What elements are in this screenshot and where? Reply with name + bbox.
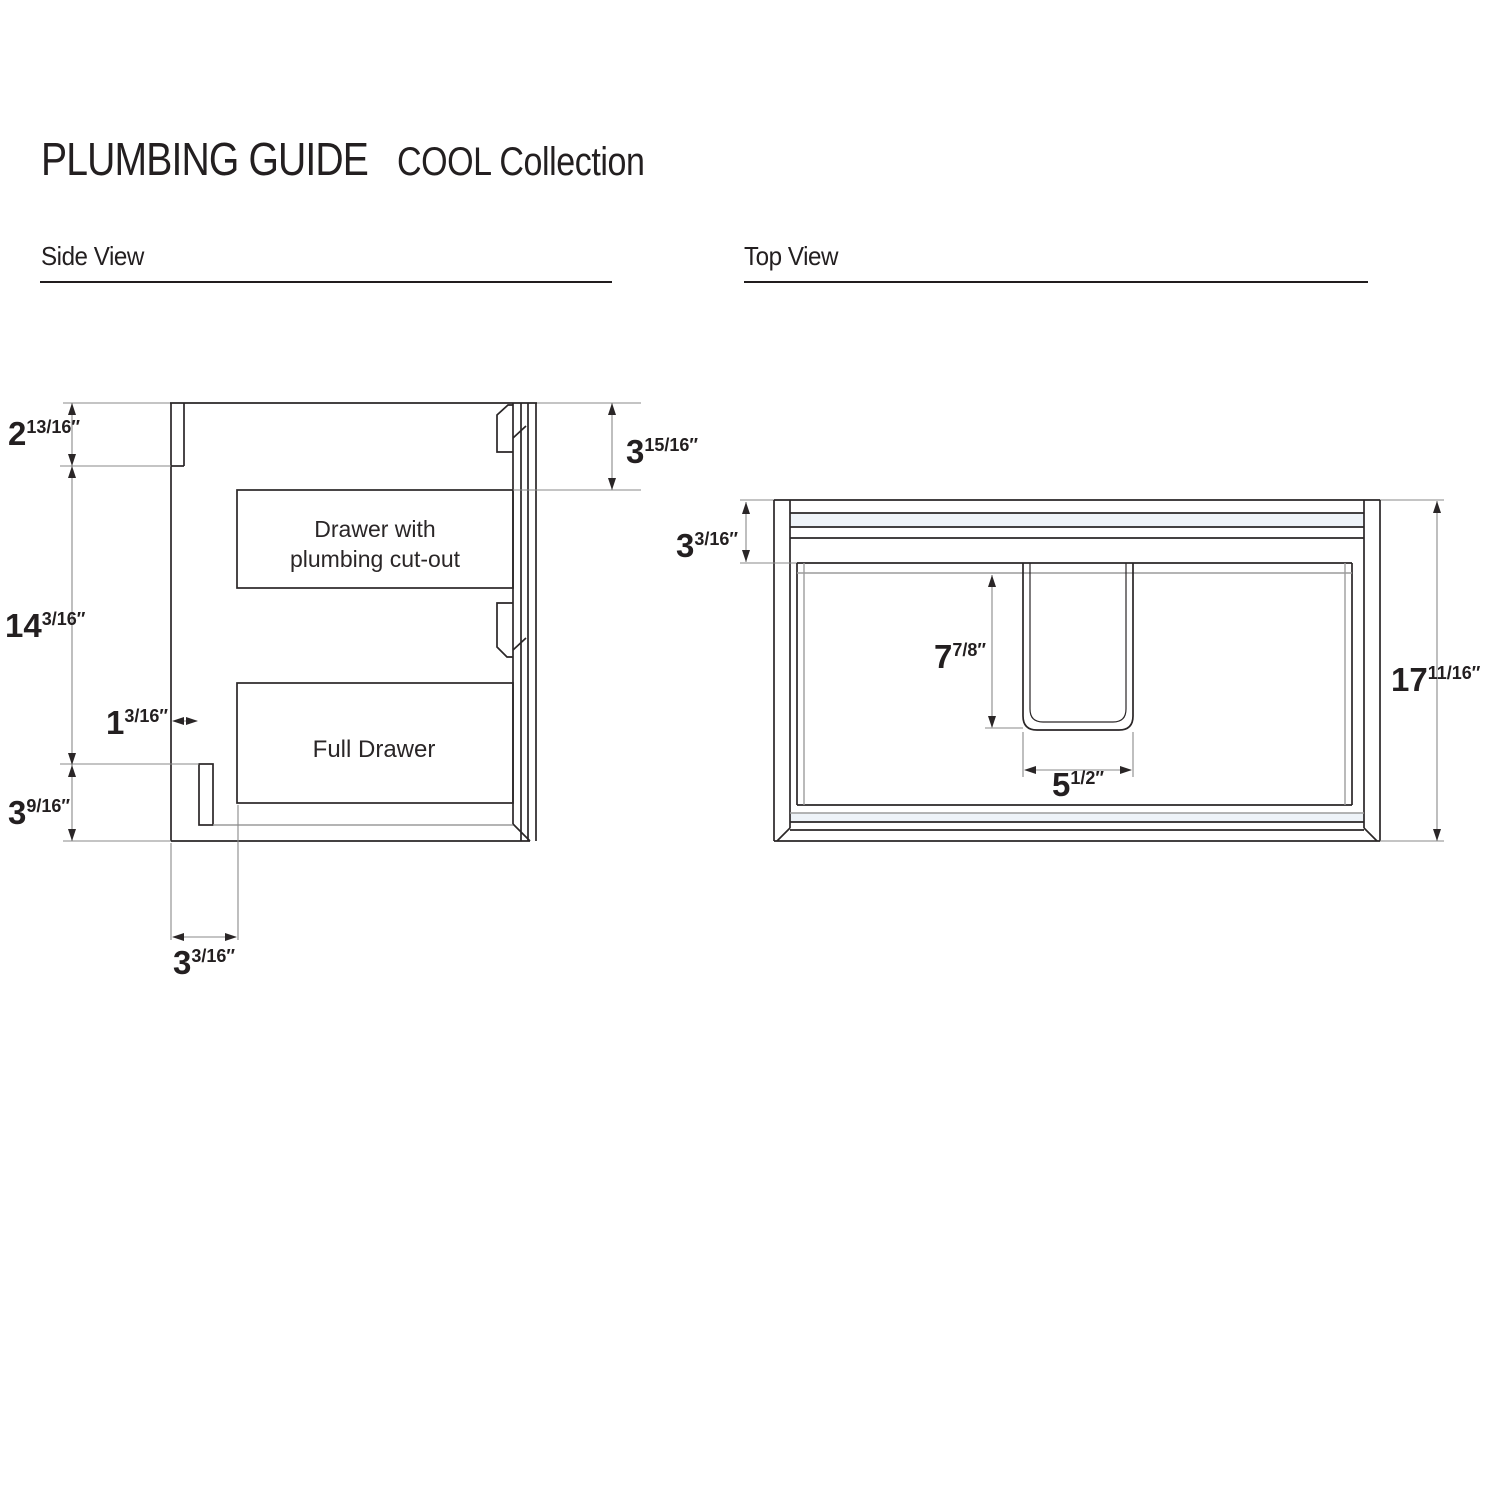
ledger-strip: [199, 764, 213, 825]
technical-drawings: 213/16″ 143/16″ 39/16″ 13/16″ 33/16″ 315…: [0, 0, 1500, 1500]
drawer-clip-middle: [497, 603, 513, 657]
top-dim-cutout-depth: 77/8″: [934, 638, 986, 675]
plumbing-guide-page: PLUMBING GUIDE COOL Collection Side View…: [0, 0, 1500, 1500]
full-drawer-label: Full Drawer: [313, 736, 436, 763]
plumbing-cutout-outer: [1023, 563, 1133, 730]
side-dim-bracket-height: 213/16″: [8, 415, 80, 452]
plumbing-cutout-inner: [1030, 563, 1126, 722]
top-dim-cabinet-depth: 1711/16″: [1391, 661, 1481, 698]
side-dimensions: [68, 403, 616, 941]
side-view-drawing: 213/16″ 143/16″ 39/16″ 13/16″ 33/16″ 315…: [5, 403, 698, 981]
side-dim-bottom-clearance: 39/16″: [8, 794, 70, 831]
top-view-drawing: 33/16″ 77/8″ 51/2″ 1711/16″: [676, 500, 1481, 841]
side-dim-top-drawer-offset: 315/16″: [626, 433, 698, 470]
side-dim-back-inset: 33/16″: [173, 944, 235, 981]
top-dimensions: [742, 501, 1441, 841]
drawer-clip-top: [497, 405, 513, 452]
drawer-with-cutout-label-line2: plumbing cut-out: [290, 546, 461, 572]
drawer-with-cutout-label-line1: Drawer with: [314, 516, 435, 542]
side-cabinet-outline: [60, 403, 641, 841]
top-dim-cutout-width: 51/2″: [1052, 766, 1104, 803]
top-dim-back-rail-depth: 33/16″: [676, 527, 738, 564]
side-dim-ledger-offset: 13/16″: [106, 704, 168, 741]
side-dim-cabinet-height: 143/16″: [5, 607, 86, 644]
top-cabinet-outline: [740, 500, 1444, 841]
